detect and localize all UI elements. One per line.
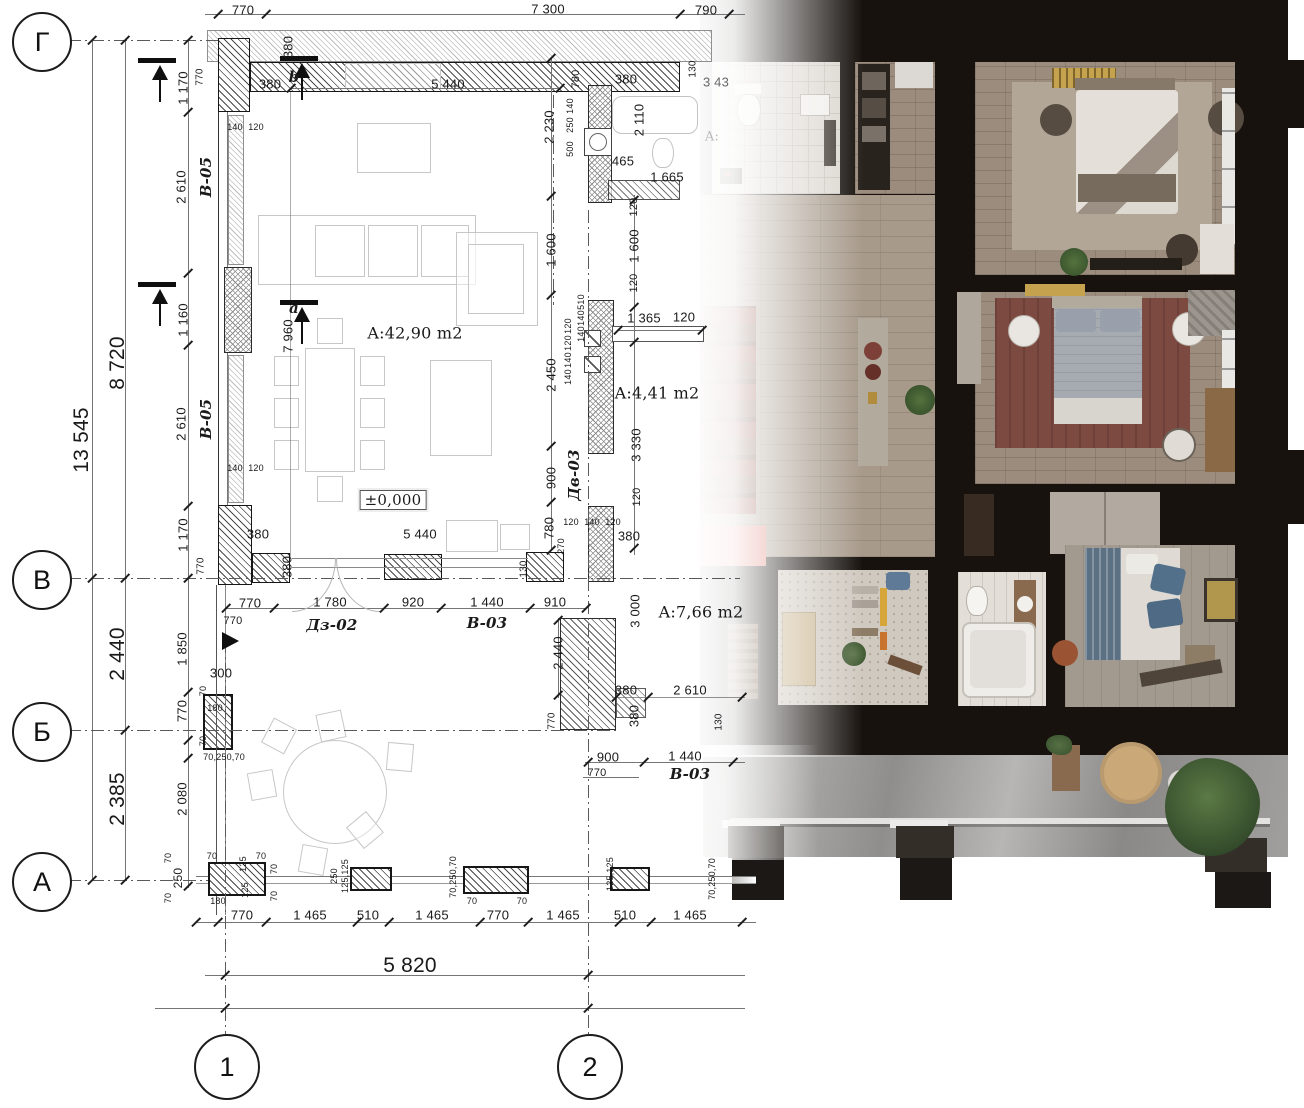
dim-label: 5 820 xyxy=(383,954,437,978)
axis-label: Б xyxy=(33,717,51,748)
room-area-hall: A:7,66 m2 xyxy=(659,603,744,622)
dim-label: 120 xyxy=(628,198,640,217)
dim-label: 380 xyxy=(627,705,642,727)
dim-label: 2 440 xyxy=(551,636,566,670)
dim-label: 380 xyxy=(280,556,295,578)
dim-label: 1 665 xyxy=(650,170,684,185)
dimension-labels: 7707 3007907701 170380b3805 4407802 2301… xyxy=(0,0,1304,1108)
dim-label: 790 xyxy=(695,3,717,18)
dim-label: 7 960 xyxy=(281,319,296,353)
dim-label: 770 xyxy=(231,908,253,923)
dim-label: 140 xyxy=(227,122,243,132)
tag-door-dv03: Дв-03 xyxy=(565,449,583,500)
axis-label: В xyxy=(33,565,51,596)
dim-label: 140 xyxy=(584,517,600,527)
dim-label: 130 xyxy=(519,560,530,577)
dim-label: 180 xyxy=(210,896,226,906)
dim-label: 380 xyxy=(615,683,637,698)
dim-label: 770 xyxy=(196,557,207,574)
dim-label: 70 xyxy=(467,896,477,906)
dim-label: 465 xyxy=(612,154,634,169)
axis-label: 1 xyxy=(219,1052,234,1083)
dim-label: 120 xyxy=(563,517,579,527)
dim-label: 770 xyxy=(232,3,254,18)
dim-label: 2 110 xyxy=(632,104,647,137)
dim-label: 120 xyxy=(563,318,573,334)
dim-label: 920 xyxy=(402,595,424,610)
axis-bubble-row-a: А xyxy=(12,852,72,912)
dim-label: 140 xyxy=(563,369,573,385)
dim-label: 380 xyxy=(259,77,281,92)
dim-label: 2 230 xyxy=(542,110,557,144)
dim-label: 140 xyxy=(576,310,586,326)
floor-plan-sheet: 7707 3007907701 170380b3805 4407802 2301… xyxy=(0,0,1304,1108)
dim-label: 70,250,70 xyxy=(707,858,717,900)
dim-label: 380 xyxy=(247,527,269,542)
dim-label: 130 xyxy=(714,713,725,730)
dim-label: 120 xyxy=(248,463,264,473)
dim-label: 13 545 xyxy=(70,407,94,472)
dim-label: 1 440 xyxy=(668,749,702,764)
dim-label: 1 780 xyxy=(313,595,347,610)
axis-label: Г xyxy=(35,27,50,58)
dim-label: 2 080 xyxy=(175,782,190,816)
tag-window-v05: В-05 xyxy=(197,157,215,198)
dim-label: 770 xyxy=(487,908,509,923)
dim-label: 2 440 xyxy=(106,627,130,681)
dim-label: 70 xyxy=(198,736,208,746)
dim-label: 120 xyxy=(248,122,264,132)
dim-label: 2 610 xyxy=(174,170,189,204)
dim-label: 1 160 xyxy=(176,303,191,337)
dim-label: 8 720 xyxy=(106,336,130,390)
dim-label: 70 xyxy=(269,864,279,874)
dim-label: 125,125 xyxy=(340,859,350,893)
dim-label: 2 450 xyxy=(544,358,559,392)
tag-door-dz02: Дз-02 xyxy=(306,616,357,634)
dim-label: 3 000 xyxy=(628,594,643,628)
dim-label: 2 610 xyxy=(174,407,189,441)
section-mark-b: b xyxy=(289,68,300,86)
dim-label: 140 xyxy=(565,98,575,114)
dim-label: 900 xyxy=(597,750,619,765)
dim-label: 125,125 xyxy=(605,857,615,891)
dim-label: 120 xyxy=(628,274,640,293)
dim-label: 1 600 xyxy=(544,233,559,267)
dim-label: 140 xyxy=(563,352,573,368)
tag-window-v05: В-05 xyxy=(197,399,215,440)
dim-label: 1 850 xyxy=(175,632,190,666)
dim-label: 1 465 xyxy=(293,908,327,923)
dim-label: 1 170 xyxy=(176,71,191,105)
dim-label: 380 xyxy=(281,36,296,58)
dim-label: 140 xyxy=(576,326,586,342)
dim-label: 770 xyxy=(547,712,558,729)
axis-label: 2 xyxy=(582,1052,597,1083)
dim-label: 70 xyxy=(517,896,527,906)
axis-bubble-row-b: Б xyxy=(12,702,72,762)
dim-label: 70,250,70 xyxy=(203,752,245,762)
level-mark: ±0,000 xyxy=(360,490,427,510)
dim-label: A: xyxy=(705,130,719,145)
dim-label: 70 xyxy=(256,851,266,861)
dim-label: 770 xyxy=(175,700,190,722)
dim-label: 780 xyxy=(570,70,582,89)
dim-label: 300 xyxy=(210,666,232,681)
dim-label: 180 xyxy=(207,703,223,713)
dim-label: 70 xyxy=(163,853,173,863)
dim-label: 125 xyxy=(240,882,250,898)
dim-label: 1 465 xyxy=(415,908,449,923)
dim-label: 900 xyxy=(544,467,559,489)
dim-label: 270 xyxy=(556,538,566,554)
dim-label: 120 xyxy=(605,517,621,527)
dim-label: 3 43 xyxy=(703,75,729,90)
dim-label: 510 xyxy=(614,908,636,923)
dim-label: 910 xyxy=(544,595,566,610)
dim-label: 120 xyxy=(631,488,643,507)
dim-label: 250 xyxy=(329,868,339,884)
axis-label: А xyxy=(33,867,51,898)
dim-label: 120 xyxy=(563,335,573,351)
dim-label: 770 xyxy=(588,767,607,779)
dim-label: 2 610 xyxy=(673,683,707,698)
axis-bubble-row-v: В xyxy=(12,550,72,610)
axis-bubble-col-2: 2 xyxy=(557,1034,623,1100)
dim-label: 770 xyxy=(239,596,261,611)
dim-label: 70 xyxy=(163,893,173,903)
room-area-living: A:42,90 m2 xyxy=(367,324,462,343)
dim-label: 70 xyxy=(207,851,217,861)
dim-label: 125 xyxy=(238,856,248,872)
dim-label: 1 365 xyxy=(627,311,661,326)
section-mark-a: a xyxy=(289,299,299,317)
dim-label: 1 600 xyxy=(627,229,642,263)
dim-label: 780 xyxy=(542,517,557,539)
dim-label: 250 xyxy=(565,117,575,133)
dim-label: 5 440 xyxy=(431,77,465,92)
dim-label: 5 440 xyxy=(403,527,437,542)
dim-label: 7 300 xyxy=(531,2,565,17)
dim-label: 510 xyxy=(576,294,586,310)
dim-label: 250 xyxy=(171,868,185,889)
dim-label: 70 xyxy=(198,686,208,696)
dim-label: 120 xyxy=(673,310,695,325)
dim-label: 770 xyxy=(224,615,243,627)
axis-bubble-col-1: 1 xyxy=(194,1034,260,1100)
dim-label: 380 xyxy=(615,72,637,87)
dim-label: 3 330 xyxy=(629,428,644,462)
dim-label: 140 xyxy=(227,463,243,473)
dim-label: 1 440 xyxy=(470,595,504,610)
dim-label: 380 xyxy=(618,529,640,544)
dim-label: 500 xyxy=(565,141,575,157)
dim-label: 130 xyxy=(688,60,699,77)
dim-label: 1 465 xyxy=(673,908,707,923)
tag-window-v03: В-03 xyxy=(670,765,711,783)
axis-bubble-row-g: Г xyxy=(12,12,72,72)
dim-label: 70,250,70 xyxy=(448,856,458,898)
dim-label: 770 xyxy=(195,68,206,85)
room-area-kitchen: A:4,41 m2 xyxy=(615,384,700,403)
tag-window-v03: В-03 xyxy=(467,614,508,632)
dim-label: 510 xyxy=(357,908,379,923)
dim-label: 2 385 xyxy=(106,772,130,826)
dim-label: 70 xyxy=(269,891,279,901)
dim-label: 1 465 xyxy=(546,908,580,923)
dim-label: 1 170 xyxy=(176,518,191,552)
